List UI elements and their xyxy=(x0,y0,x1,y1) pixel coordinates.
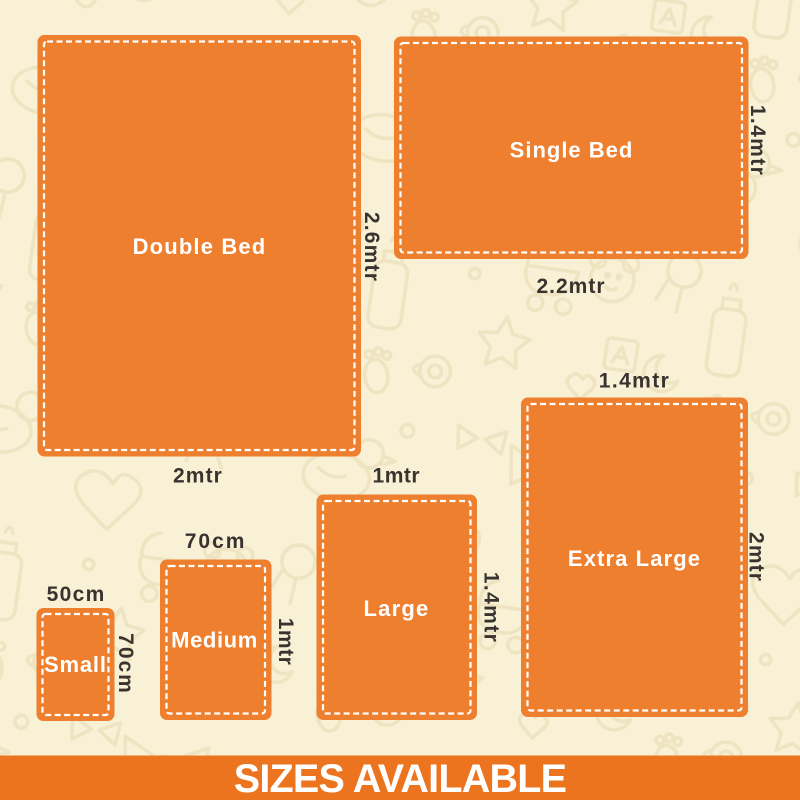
svg-text:Double Bed: Double Bed xyxy=(133,234,267,259)
svg-text:2mtr: 2mtr xyxy=(745,532,768,582)
svg-text:2mtr: 2mtr xyxy=(173,465,223,488)
svg-text:1mtr: 1mtr xyxy=(274,618,297,666)
svg-text:Small: Small xyxy=(44,652,107,677)
svg-text:2.6mtr: 2.6mtr xyxy=(360,212,383,282)
svg-text:1mtr: 1mtr xyxy=(373,465,421,488)
svg-text:70cm: 70cm xyxy=(114,633,137,695)
svg-text:2.2mtr: 2.2mtr xyxy=(536,275,605,298)
svg-text:Single Bed: Single Bed xyxy=(510,138,634,163)
svg-text:SIZES AVAILABLE: SIZES AVAILABLE xyxy=(234,757,567,800)
svg-text:70cm: 70cm xyxy=(185,530,247,553)
svg-text:1.4mtr: 1.4mtr xyxy=(746,105,769,176)
svg-text:1.4mtr: 1.4mtr xyxy=(480,572,503,643)
svg-text:1.4mtr: 1.4mtr xyxy=(599,370,670,393)
svg-text:Extra Large: Extra Large xyxy=(568,546,701,571)
svg-text:50cm: 50cm xyxy=(47,583,106,606)
svg-text:Medium: Medium xyxy=(171,628,258,653)
svg-text:Large: Large xyxy=(364,596,430,621)
